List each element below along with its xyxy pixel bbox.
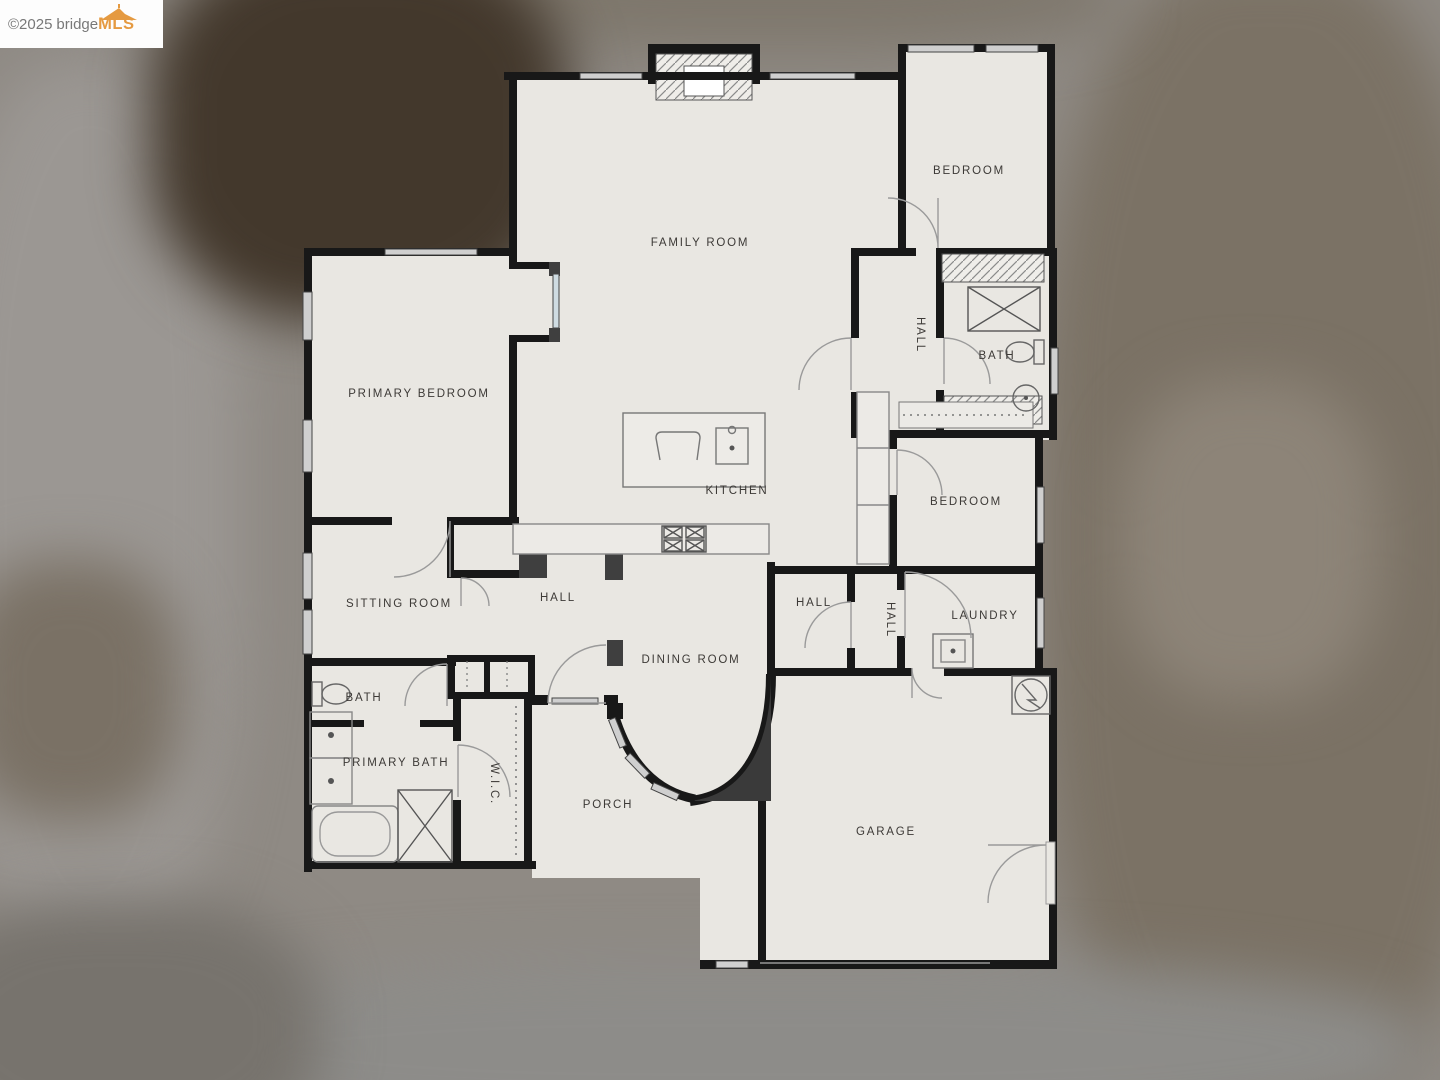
room-label-sitting-room: SITTING ROOM — [346, 598, 452, 610]
mountain-logo-icon — [99, 4, 139, 22]
room-label-porch: PORCH — [583, 799, 634, 811]
watermark-copyright: ©2025 — [8, 16, 52, 33]
room-label-hall-center: HALL — [540, 592, 576, 604]
room-label-wic: W.I.C. — [488, 763, 500, 805]
room-label-primary-bedroom: PRIMARY BEDROOM — [348, 388, 490, 400]
range-counter-fixture — [513, 524, 769, 554]
room-label-hall-top: HALL — [914, 317, 926, 353]
garage-side-door — [1046, 842, 1055, 904]
kitchen-island-fixture — [623, 413, 765, 487]
watermark-brand-gray: bridge — [56, 16, 98, 33]
counter-fixture — [857, 392, 889, 564]
room-label-kitchen: KITCHEN — [705, 485, 768, 497]
room-label-bath-top: BATH — [978, 350, 1015, 362]
room-label-family-room: FAMILY ROOM — [651, 237, 750, 249]
room-label-bedroom-top: BEDROOM — [933, 165, 1005, 177]
room-label-bedroom-mid: BEDROOM — [930, 496, 1002, 508]
room-label-bath-small: BATH — [345, 692, 382, 704]
room-label-dining-room: DINING ROOM — [641, 654, 740, 666]
floorplan-drawing: FAMILY ROOM BEDROOM HALL BATH PRIMARY BE… — [0, 0, 1440, 1080]
room-label-hall-small: HALL — [884, 602, 896, 638]
floorplan-image: FAMILY ROOM BEDROOM HALL BATH PRIMARY BE… — [0, 0, 1440, 1080]
room-label-garage: GARAGE — [856, 826, 916, 838]
room-label-laundry: LAUNDRY — [951, 610, 1018, 622]
room-label-primary-bath: PRIMARY BATH — [343, 757, 450, 769]
room-label-hall-right: HALL — [796, 597, 832, 609]
watermark: ©2025 bridge MLS — [0, 0, 163, 48]
